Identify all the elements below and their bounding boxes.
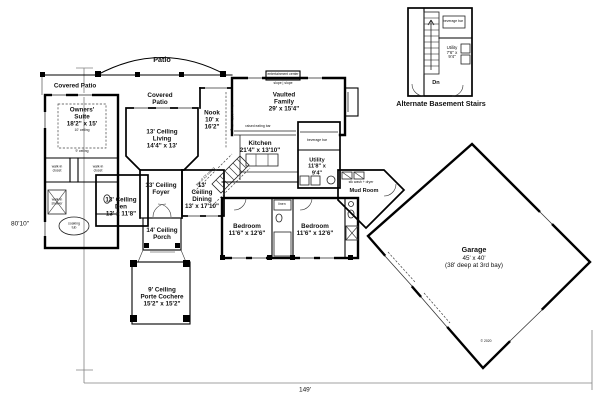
kitchen-walls <box>222 131 298 182</box>
kitchen-label: Kitchen 21'4" x 13'10" <box>240 140 280 154</box>
garage-dims-label: 45' x 40' (38' deep at 3rd bay) <box>445 255 503 269</box>
raised-eating-bar-label: raised eating bar <box>245 125 270 129</box>
den-label: 13' Ceiling Den 13' x 11'8" <box>105 196 136 217</box>
floor-plan-page: Patio Covered Patio Covered Patio Owners… <box>0 0 600 400</box>
patio-label: Patio <box>153 56 171 64</box>
copyright-label: © 2020 <box>481 340 492 344</box>
porch-label: 14' Ceiling Porch <box>146 227 177 241</box>
family-label: Vaulted Family 29' x 15'4" <box>269 91 300 112</box>
inset-caption: Alternate Basement Stairs <box>396 100 485 108</box>
utility-label: Utility 11'8" x 9'4" <box>308 158 326 177</box>
linen-label: linen <box>278 203 285 207</box>
slope-label: slope | slope <box>274 82 293 86</box>
covered-patio-center-label: Covered Patio <box>147 92 172 106</box>
floor-plan-drawing <box>0 0 600 400</box>
soaking-tub-label: soaking tub <box>68 222 80 229</box>
living-label: 13' Ceiling Living 14'4" x 13' <box>146 128 177 149</box>
walk-in-closet-2-label: walk-in closet <box>93 165 104 172</box>
wash-dryer-label: stk wash + dryer <box>349 181 374 185</box>
inset-dn-label: Dn <box>432 80 439 86</box>
mud-room-label: Mud Room <box>350 188 379 194</box>
entertainment-center-label: entertainment center <box>267 73 298 77</box>
ceiling-line-1-label: line of 13' ceiling <box>229 106 233 131</box>
nook-label: Nook 10' x 16'2" <box>204 109 220 130</box>
covered-patio-left-label: Covered Patio <box>54 82 96 89</box>
owners-ceiling-label: 9' ceiling <box>75 150 88 154</box>
inset-beverage-bar-label: beverage bar <box>443 20 463 24</box>
walk-in-closet-1-label: walk-in closet <box>52 165 63 172</box>
beverage-bar-label: beverage bar <box>307 139 327 143</box>
garage-label: Garage <box>462 246 487 254</box>
dining-label: 13' Ceiling Dining 13' x 17'10" <box>185 182 219 210</box>
porte-cochere-label: 9' Ceiling Porte Cochere 15'2" x 15'2" <box>140 286 183 307</box>
height-dimension-label: 80'10" <box>11 220 29 227</box>
walk-in-shower-label: walk-in shower <box>52 198 63 205</box>
bedroom-right-label: Bedroom 11'6" x 12'6" <box>297 223 334 237</box>
owners-tray-ceiling-label: 10' ceiling <box>75 129 90 133</box>
width-dimension-label: 149' <box>299 386 311 393</box>
foyer-label: 13' Ceiling Foyer <box>145 182 176 196</box>
inset-utility-label: Utility 7'6" x 9'4" <box>447 46 458 60</box>
bedroom-left-label: Bedroom 11'6" x 12'6" <box>229 223 266 237</box>
owners-suite-label: Owners' Suite 18'2" x 15' <box>67 106 98 127</box>
